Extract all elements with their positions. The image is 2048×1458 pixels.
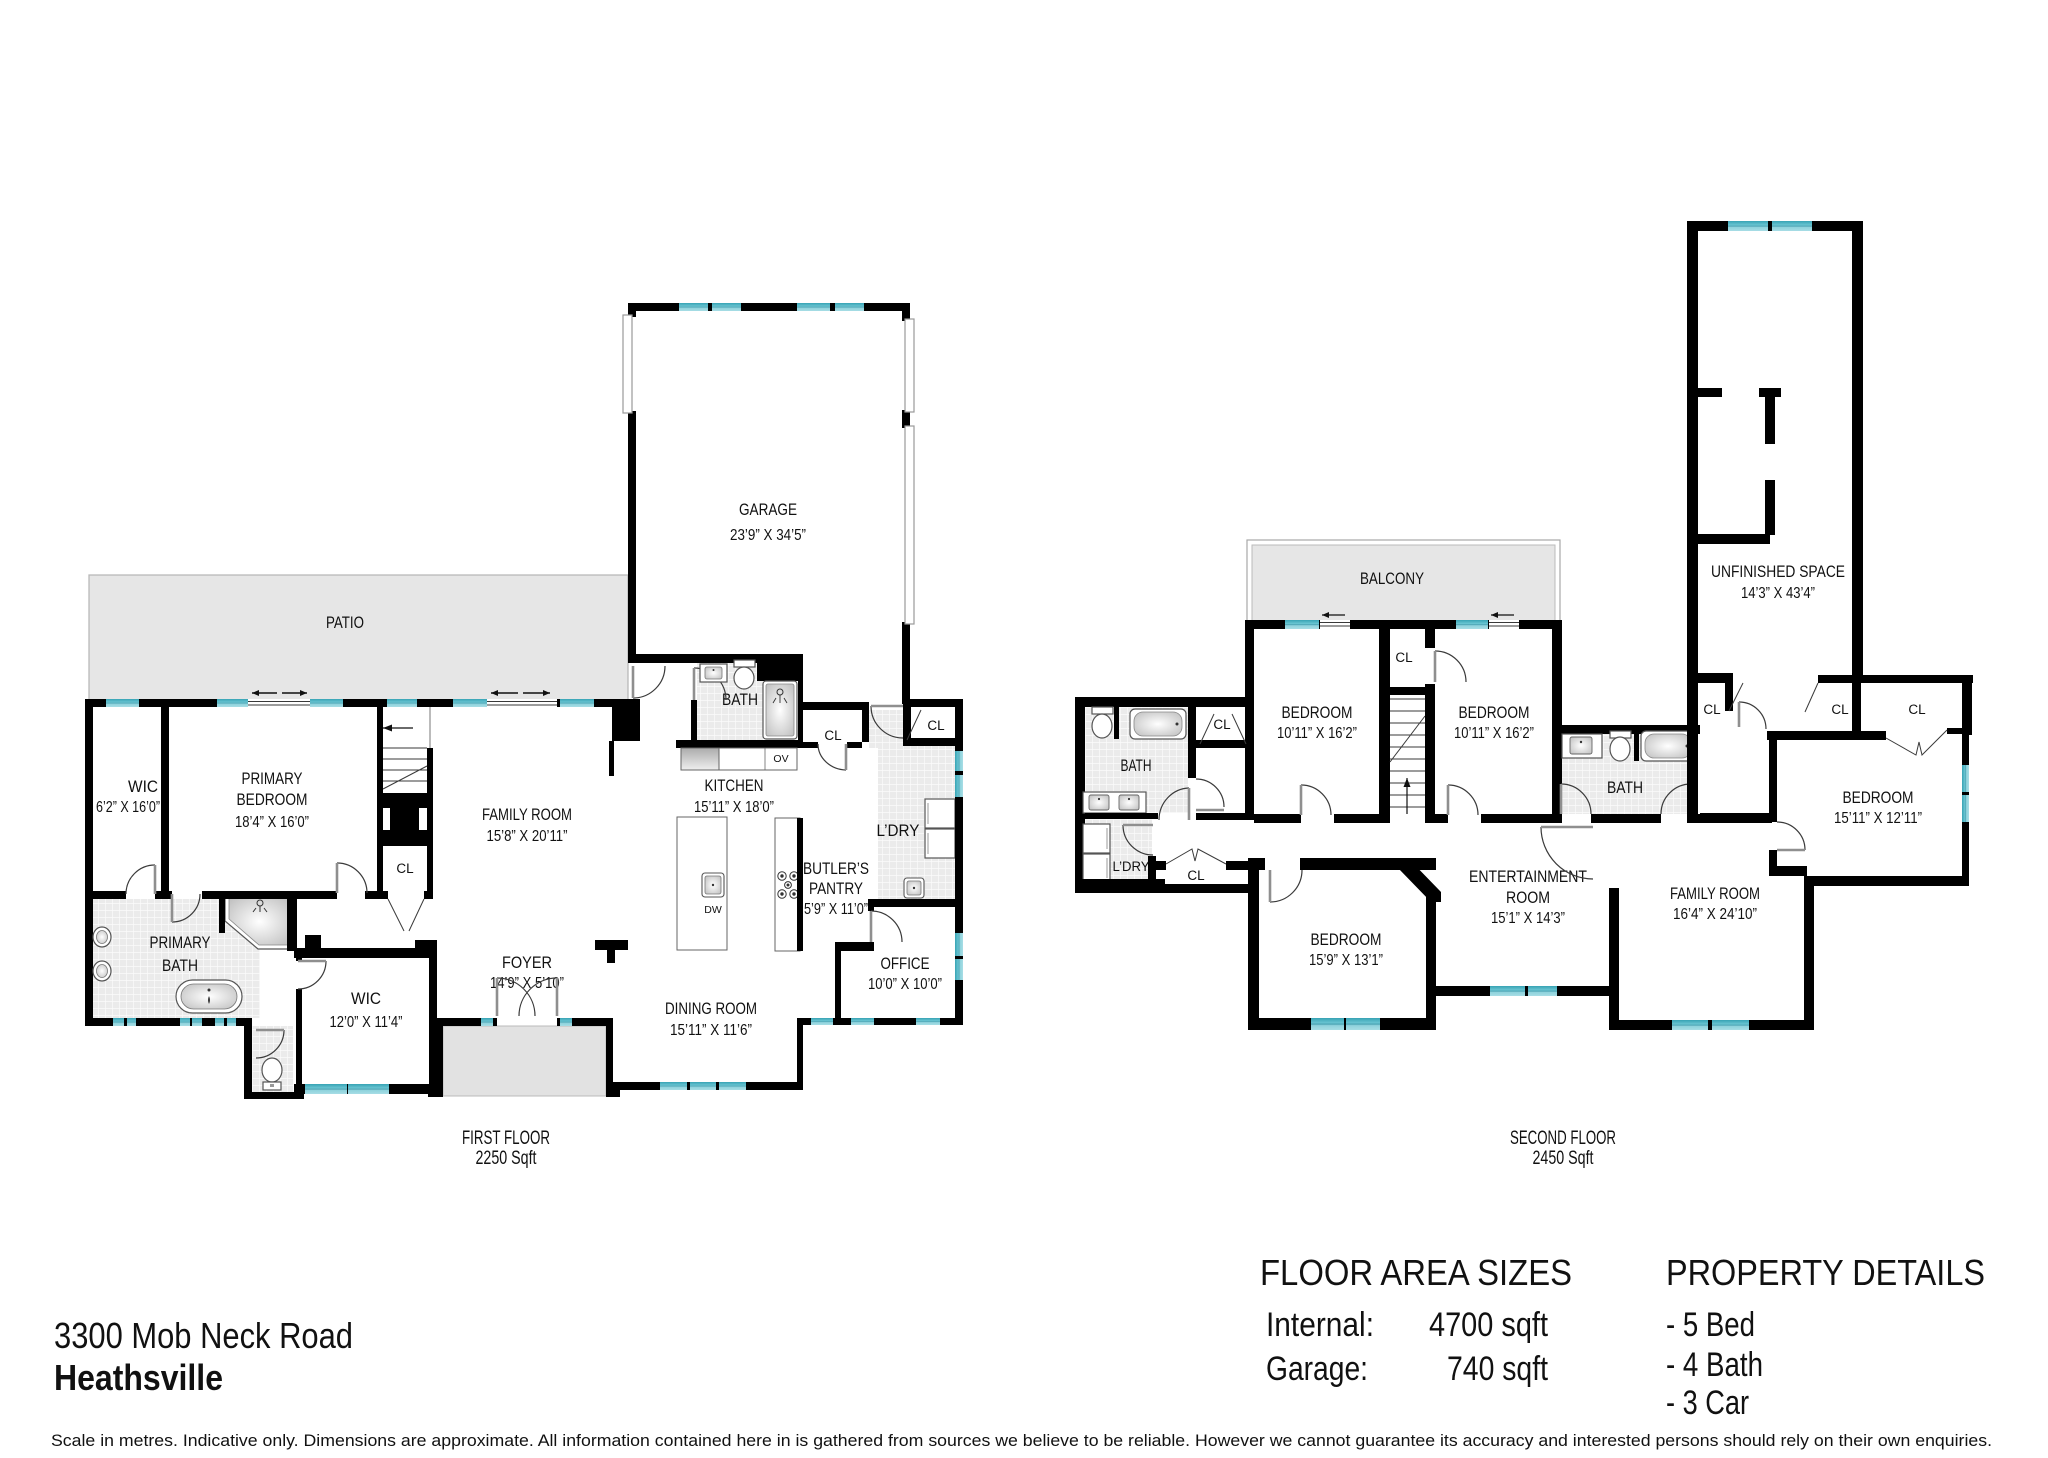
svg-text:L’DRY: L’DRY <box>877 822 920 840</box>
svg-text:PATIO: PATIO <box>326 614 364 632</box>
svg-text:CL: CL <box>1187 868 1205 883</box>
svg-text:CL: CL <box>1703 702 1721 717</box>
svg-text:FOYER: FOYER <box>502 954 552 972</box>
svg-text:CL: CL <box>396 861 414 876</box>
svg-text:Heathsville: Heathsville <box>54 1357 223 1398</box>
svg-text:15’11” X 18’0”: 15’11” X 18’0” <box>694 799 774 816</box>
svg-text:2250 Sqft: 2250 Sqft <box>476 1148 538 1169</box>
svg-text:- 4 Bath: - 4 Bath <box>1666 1346 1763 1384</box>
svg-text:GARAGE: GARAGE <box>739 501 797 519</box>
svg-text:SECOND FLOOR: SECOND FLOOR <box>1510 1128 1616 1149</box>
svg-text:CL: CL <box>1831 702 1849 717</box>
svg-text:FAMILY ROOM: FAMILY ROOM <box>482 806 572 824</box>
svg-text:6’2” X 16’0”: 6’2” X 16’0” <box>96 799 160 816</box>
svg-text:15’8” X 20’11”: 15’8” X 20’11” <box>487 828 568 845</box>
svg-text:ROOM: ROOM <box>1506 889 1550 907</box>
svg-text:BEDROOM: BEDROOM <box>237 791 308 809</box>
svg-text:10’11” X 16’2”: 10’11” X 16’2” <box>1277 725 1357 742</box>
svg-text:PRIMARY: PRIMARY <box>150 934 211 952</box>
svg-text:WIC: WIC <box>128 778 158 796</box>
svg-text:15’11” X 11’6”: 15’11” X 11’6” <box>670 1022 752 1039</box>
svg-text:23’9” X 34’5”: 23’9” X 34’5” <box>730 527 806 544</box>
svg-text:14’9” X 5’10”: 14’9” X 5’10” <box>490 975 564 992</box>
svg-text:OV: OV <box>773 753 788 765</box>
svg-text:BEDROOM: BEDROOM <box>1459 704 1530 722</box>
svg-text:UNFINISHED SPACE: UNFINISHED SPACE <box>1711 563 1845 581</box>
svg-text:BEDROOM: BEDROOM <box>1311 931 1382 949</box>
svg-text:- 5 Bed: - 5 Bed <box>1666 1306 1755 1344</box>
svg-text:2450 Sqft: 2450 Sqft <box>1533 1148 1595 1169</box>
svg-text:BATH: BATH <box>1121 757 1152 775</box>
svg-text:3300 Mob Neck Road: 3300 Mob Neck Road <box>54 1315 353 1356</box>
svg-text:DINING ROOM: DINING ROOM <box>665 1000 757 1018</box>
svg-text:16’4” X 24’10”: 16’4” X 24’10” <box>1673 906 1757 923</box>
svg-text:ENTERTAINMENT: ENTERTAINMENT <box>1469 868 1587 886</box>
svg-text:4700 sqft: 4700 sqft <box>1429 1306 1548 1344</box>
svg-text:FIRST FLOOR: FIRST FLOOR <box>462 1128 550 1149</box>
svg-text:18’4” X 16’0”: 18’4” X 16’0” <box>235 814 309 831</box>
svg-text:DW: DW <box>704 904 722 916</box>
svg-text:14’3” X 43’4”: 14’3” X 43’4” <box>1741 585 1815 602</box>
svg-text:BATH: BATH <box>162 957 198 975</box>
svg-text:BEDROOM: BEDROOM <box>1282 704 1353 722</box>
svg-text:BATH: BATH <box>722 691 758 709</box>
svg-text:15’9” X 13’1”: 15’9” X 13’1” <box>1309 952 1383 969</box>
svg-text:KITCHEN: KITCHEN <box>705 777 764 795</box>
svg-text:15’11” X 12’11”: 15’11” X 12’11” <box>1834 810 1922 827</box>
svg-text:CL: CL <box>1213 717 1231 732</box>
svg-text:PROPERTY DETAILS: PROPERTY DETAILS <box>1666 1252 1985 1293</box>
svg-text:PANTRY: PANTRY <box>809 880 863 898</box>
svg-text:CL: CL <box>824 728 842 743</box>
svg-text:12’0” X 11’4”: 12’0” X 11’4” <box>330 1014 403 1031</box>
svg-text:Internal:: Internal: <box>1266 1306 1374 1344</box>
svg-text:CL: CL <box>1908 702 1926 717</box>
svg-text:740 sqft: 740 sqft <box>1447 1350 1548 1388</box>
svg-text:10’11” X 16’2”: 10’11” X 16’2” <box>1454 725 1534 742</box>
svg-text:BEDROOM: BEDROOM <box>1843 789 1914 807</box>
svg-text:CL: CL <box>1395 650 1413 665</box>
svg-text:Garage:: Garage: <box>1266 1350 1368 1388</box>
svg-text:PRIMARY: PRIMARY <box>242 770 303 788</box>
svg-text:10’0” X 10’0”: 10’0” X 10’0” <box>868 976 942 993</box>
svg-text:WIC: WIC <box>351 990 381 1008</box>
svg-text:BALCONY: BALCONY <box>1360 570 1424 588</box>
svg-text:CL: CL <box>927 718 945 733</box>
svg-text:BATH: BATH <box>1607 779 1643 797</box>
svg-text:FAMILY ROOM: FAMILY ROOM <box>1670 885 1760 903</box>
svg-text:BUTLER’S: BUTLER’S <box>803 860 869 878</box>
svg-text:5’9” X 11’0”: 5’9” X 11’0” <box>804 901 868 918</box>
svg-text:- 3 Car: - 3 Car <box>1666 1384 1749 1422</box>
svg-text:15’1” X 14’3”: 15’1” X 14’3” <box>1491 910 1565 927</box>
svg-text:Scale in metres. Indicative on: Scale in metres. Indicative only. Dimens… <box>51 1431 1992 1450</box>
svg-text:L’DRY: L’DRY <box>1113 859 1150 874</box>
svg-text:OFFICE: OFFICE <box>881 955 930 973</box>
svg-text:FLOOR AREA SIZES: FLOOR AREA SIZES <box>1260 1252 1572 1293</box>
